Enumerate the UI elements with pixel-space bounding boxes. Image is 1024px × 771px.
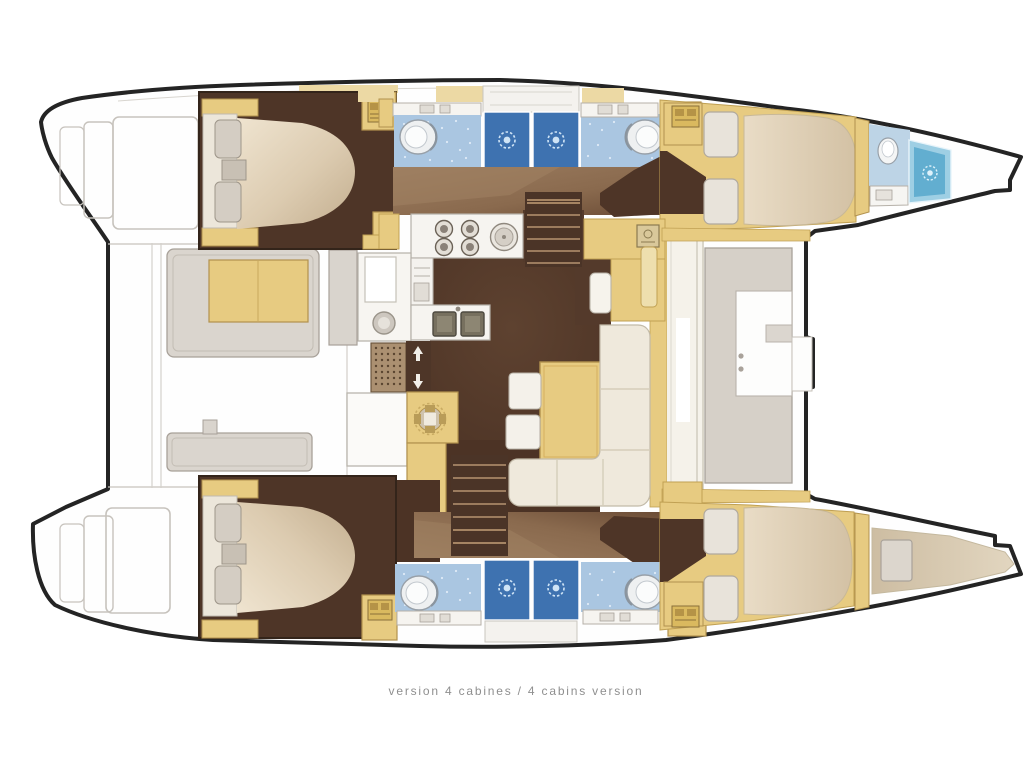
svg-text:version 4 cabines / 4 cabins v: version 4 cabines / 4 cabins version [389, 684, 644, 698]
